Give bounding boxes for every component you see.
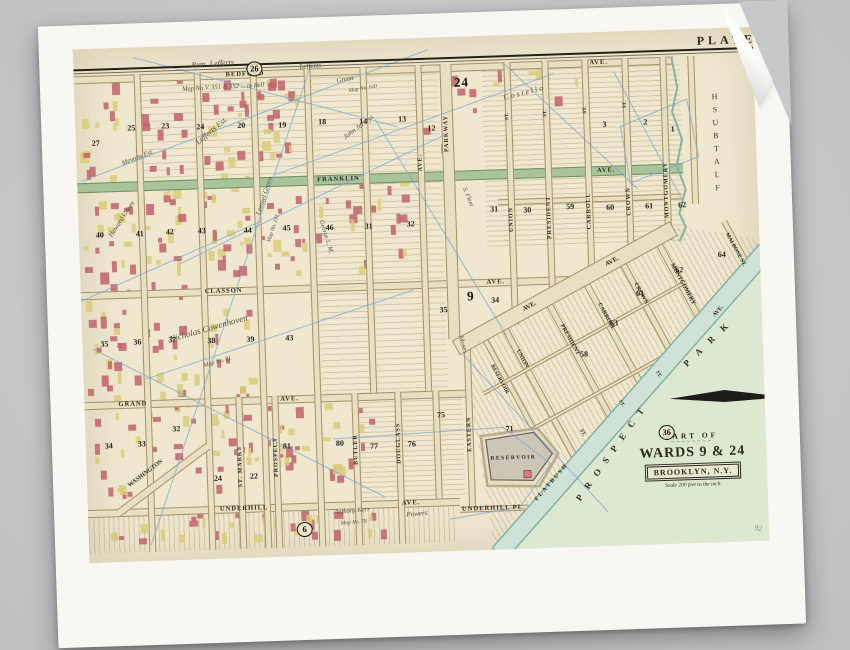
- building: [284, 456, 289, 466]
- building: [181, 373, 187, 381]
- building: [157, 130, 163, 141]
- street-label: AVE.: [597, 167, 616, 175]
- building: [161, 529, 165, 540]
- block-number: 3: [602, 120, 606, 129]
- building: [378, 199, 381, 211]
- building: [86, 300, 92, 311]
- block-number: 39: [246, 335, 254, 344]
- building: [95, 457, 99, 464]
- block-number: 80: [336, 439, 344, 448]
- block-number: 36: [133, 337, 141, 346]
- block-number: 61: [645, 201, 653, 210]
- building: [230, 523, 235, 528]
- building: [275, 264, 280, 270]
- building: [95, 122, 99, 127]
- building: [243, 415, 252, 421]
- building: [128, 492, 133, 497]
- block-number: 71: [505, 424, 513, 433]
- building: [121, 260, 125, 268]
- street-label: GRAND: [118, 400, 147, 408]
- building: [267, 203, 274, 209]
- building: [82, 119, 86, 125]
- block-number: 30: [523, 205, 531, 214]
- building: [278, 209, 282, 214]
- building: [296, 270, 302, 276]
- building: [108, 487, 113, 496]
- street-label-st: ST.: [542, 110, 547, 117]
- block-number: 64: [718, 250, 726, 259]
- building: [302, 243, 307, 252]
- block-number: 27: [92, 139, 100, 148]
- building: [575, 78, 579, 87]
- building: [369, 418, 375, 424]
- building: [111, 203, 120, 209]
- building: [248, 377, 257, 385]
- building: [281, 251, 289, 256]
- building: [216, 485, 222, 494]
- building: [274, 131, 280, 143]
- building: [333, 422, 340, 429]
- building: [319, 206, 323, 218]
- building: [241, 92, 244, 101]
- street-label: PROSPECT: [272, 437, 279, 477]
- block-number: 61: [636, 289, 644, 298]
- building: [240, 242, 243, 246]
- building: [257, 94, 264, 100]
- building: [96, 248, 100, 254]
- block-number: 31: [365, 222, 373, 231]
- building: [122, 310, 126, 315]
- building: [166, 167, 170, 175]
- building: [263, 129, 271, 134]
- building: [141, 525, 147, 534]
- building: [111, 261, 117, 273]
- building: [301, 446, 310, 451]
- map-label: AVE.: [712, 304, 725, 318]
- building: [359, 266, 365, 275]
- building: [472, 108, 476, 112]
- building: [190, 418, 195, 424]
- building: [110, 111, 116, 121]
- building: [90, 167, 96, 177]
- plate-reference: 24: [454, 74, 470, 90]
- street-label: AVE.: [487, 278, 506, 286]
- building: [240, 386, 246, 394]
- building: [152, 346, 159, 353]
- building: [368, 528, 372, 538]
- building: [289, 145, 292, 152]
- building: [222, 255, 226, 262]
- building: [103, 102, 109, 110]
- block-number: 44: [244, 226, 252, 235]
- street-label: DOUGLASS: [395, 423, 402, 464]
- building: [114, 362, 122, 371]
- building: [113, 323, 120, 328]
- building: [174, 113, 183, 121]
- building: [83, 153, 91, 158]
- building: [202, 93, 209, 102]
- block-number: 58: [580, 350, 588, 359]
- block-number: 81: [283, 441, 291, 450]
- building: [159, 244, 166, 253]
- block-number: 2: [643, 117, 647, 126]
- block-number: 1: [670, 125, 674, 134]
- building: [248, 447, 252, 456]
- building: [325, 403, 333, 411]
- street-label: PARKWAY: [443, 115, 450, 152]
- building: [109, 241, 114, 246]
- building: [128, 425, 136, 430]
- building: [154, 323, 160, 331]
- building: [153, 417, 162, 422]
- street-label: MONTGOMERY: [662, 162, 670, 218]
- building: [111, 534, 118, 541]
- building: [130, 264, 137, 274]
- building: [113, 123, 117, 131]
- building: [209, 251, 215, 262]
- building: [95, 443, 100, 455]
- block-number: 34: [105, 441, 113, 450]
- building: [270, 152, 275, 160]
- building: [212, 194, 216, 203]
- block-number: 62: [675, 265, 683, 274]
- block-number: 43: [285, 333, 293, 342]
- building: [151, 99, 159, 104]
- building: [268, 253, 272, 257]
- building: [311, 532, 318, 540]
- building: [179, 165, 184, 174]
- block-number: 13: [398, 114, 406, 123]
- building: [196, 467, 202, 474]
- building: [493, 82, 501, 87]
- building: [224, 245, 232, 252]
- building: [155, 259, 161, 265]
- block-number: 77: [370, 442, 378, 451]
- block-number: 18: [318, 117, 326, 126]
- street-label: BUTLER: [352, 434, 359, 465]
- building: [183, 416, 189, 427]
- building: [195, 375, 200, 386]
- street-label: ST. MARKS: [236, 446, 243, 487]
- street-label: AVE.: [589, 59, 608, 67]
- building: [228, 106, 234, 111]
- building: [158, 238, 163, 243]
- building: [150, 166, 157, 172]
- building: [222, 532, 227, 543]
- building: [177, 384, 183, 395]
- building: [254, 457, 259, 461]
- building: [390, 225, 396, 235]
- building: [361, 443, 365, 451]
- building: [337, 475, 344, 482]
- building: [254, 534, 263, 543]
- building: [267, 83, 276, 91]
- cartouche: PART OF ~~~~~~~~ WARDS 9 & 24 BROOKLYN, …: [614, 429, 770, 491]
- building: [291, 523, 296, 532]
- building: [289, 428, 295, 435]
- building: [124, 242, 133, 247]
- building: [101, 272, 110, 284]
- block-number: 75: [437, 410, 445, 419]
- block-number: 60: [606, 203, 614, 212]
- building: [94, 206, 98, 215]
- block-number: 31: [490, 204, 498, 213]
- street-label: PRESIDENT: [545, 196, 552, 240]
- block-number: 40: [96, 231, 104, 240]
- map-label: ST.: [654, 370, 662, 379]
- building: [119, 536, 124, 540]
- block-number: 45: [283, 223, 291, 232]
- building: [227, 230, 235, 236]
- map-plate: PART OF ~~~~~~~~ WARDS 9 & 24 BROOKLYN, …: [73, 27, 770, 563]
- building: [239, 266, 247, 276]
- street-label: CLASSON: [205, 287, 243, 295]
- building: [388, 186, 392, 195]
- building: [131, 223, 135, 232]
- building: [242, 208, 250, 214]
- building: [216, 162, 223, 171]
- building: [273, 240, 282, 252]
- cartouche-city: BROOKLYN, N.Y.: [646, 464, 739, 480]
- building: [178, 213, 186, 222]
- block-number: 25: [127, 123, 135, 132]
- building: [396, 214, 400, 225]
- building: [159, 339, 164, 349]
- building: [118, 372, 122, 384]
- street-label: AVE.: [417, 154, 424, 172]
- building: [403, 249, 407, 257]
- block-number: 62: [678, 200, 686, 209]
- building: [247, 310, 253, 317]
- building: [294, 95, 298, 106]
- building: [146, 203, 155, 215]
- street-label: FRANKLIN: [317, 175, 360, 183]
- building: [119, 485, 127, 495]
- building: [295, 446, 301, 451]
- building: [87, 170, 91, 180]
- building: [88, 389, 94, 396]
- building: [204, 156, 211, 165]
- building: [111, 337, 117, 342]
- block-number: 42: [166, 227, 174, 236]
- cartouche-scale: Scale 200 feet to the inch.: [615, 480, 769, 491]
- block-number: 19: [278, 120, 286, 129]
- building: [88, 320, 97, 327]
- building: [229, 157, 236, 168]
- block-number: 34: [491, 295, 499, 304]
- building: [176, 261, 180, 271]
- building: [191, 516, 196, 522]
- building: [112, 83, 120, 95]
- block-number: 41: [136, 229, 144, 238]
- building: [181, 129, 187, 138]
- street-label: CARROLL: [585, 192, 592, 229]
- handwriting-note: S. Fleet: [461, 186, 475, 207]
- building: [277, 153, 282, 158]
- building: [233, 270, 240, 277]
- building: [101, 375, 109, 387]
- building: [223, 308, 229, 316]
- street-label: UNION: [508, 207, 515, 232]
- block-number: 63: [610, 319, 618, 328]
- building: [222, 429, 226, 438]
- building: [291, 256, 295, 261]
- block-number: 32: [172, 424, 180, 433]
- street-road: [687, 56, 699, 204]
- block-number: 76: [408, 439, 416, 448]
- block-number: 32: [406, 219, 414, 228]
- block-number: 12: [427, 123, 435, 132]
- building: [178, 207, 182, 214]
- area-label-flatbush: HSUBTALF: [708, 90, 723, 194]
- building: [121, 449, 125, 458]
- block-number: 59: [566, 202, 574, 211]
- street-label-st: ST.: [622, 101, 627, 108]
- building: [95, 418, 101, 426]
- north-arrow-icon: [669, 388, 769, 404]
- building: [262, 141, 271, 151]
- building: [554, 96, 562, 106]
- atlas-map: PART OF ~~~~~~~~ WARDS 9 & 24 BROOKLYN, …: [73, 27, 770, 563]
- building: [246, 457, 251, 465]
- block-number: 22: [250, 472, 258, 481]
- building: [238, 112, 242, 117]
- paper-sheet: PART OF ~~~~~~~~ WARDS 9 & 24 BROOKLYN, …: [38, 2, 806, 648]
- street-label-st: ST.: [505, 113, 510, 120]
- building: [237, 151, 246, 160]
- street-label-st: ST.: [582, 106, 587, 113]
- building: [246, 244, 253, 254]
- building: [333, 530, 341, 541]
- building: [295, 239, 301, 246]
- building: [369, 515, 373, 521]
- street-label: AVE.: [402, 499, 421, 507]
- building: [353, 206, 362, 214]
- block-number: 24: [214, 474, 222, 483]
- building: [238, 221, 243, 229]
- building: [292, 455, 297, 463]
- street-label: EASTERN: [466, 416, 473, 452]
- handwriting-note: Map No. 191: [266, 214, 281, 243]
- handwriting-note: 92: [754, 523, 763, 533]
- block-number: 35: [100, 339, 108, 348]
- handwriting-note: Lefferts: [299, 61, 321, 70]
- building: [84, 246, 88, 251]
- building: [213, 229, 217, 240]
- building: [174, 444, 183, 449]
- building: [112, 101, 117, 111]
- building: [402, 194, 410, 203]
- building: [325, 198, 328, 204]
- building: [217, 467, 224, 472]
- plate-reference: 9: [467, 288, 475, 304]
- block-number: 35: [439, 305, 447, 314]
- building: [346, 200, 350, 208]
- block-number: 38: [207, 336, 215, 345]
- building: [116, 413, 119, 420]
- building: [296, 407, 304, 418]
- building: [85, 267, 93, 273]
- building: [272, 109, 279, 119]
- building: [332, 464, 338, 474]
- building: [174, 355, 178, 359]
- building: [351, 219, 355, 231]
- block-number: 43: [198, 226, 206, 235]
- building: [224, 147, 231, 153]
- building: [134, 376, 141, 385]
- building: [294, 225, 299, 233]
- building: [239, 101, 247, 108]
- building: [497, 70, 502, 82]
- block-number: 20: [237, 121, 245, 130]
- building: [101, 317, 107, 329]
- street-label: AVE.: [280, 395, 299, 403]
- building: [323, 437, 331, 441]
- building: [100, 471, 107, 480]
- building: [244, 237, 252, 244]
- building: [296, 196, 302, 204]
- building: [99, 201, 107, 210]
- building: [163, 151, 167, 160]
- building: [170, 199, 175, 205]
- building: [157, 372, 164, 382]
- building: [139, 538, 147, 545]
- building: [180, 535, 185, 543]
- building: [469, 89, 476, 98]
- street-label: CROWN: [625, 187, 632, 216]
- building: [213, 104, 218, 115]
- building: [108, 361, 112, 369]
- building: [202, 518, 206, 528]
- block-number: 23: [161, 121, 169, 130]
- building: [118, 343, 126, 352]
- building: [381, 529, 387, 539]
- building: [277, 81, 285, 91]
- block-number: 33: [138, 439, 146, 448]
- building: [246, 215, 251, 221]
- map-label: ST.: [617, 399, 625, 408]
